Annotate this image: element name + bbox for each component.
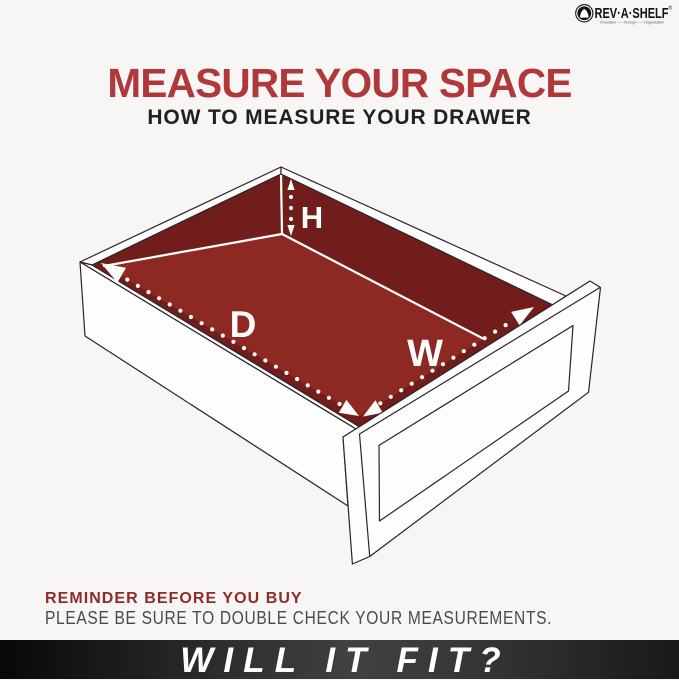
svg-text:H: H bbox=[301, 200, 323, 235]
svg-text:W: W bbox=[407, 333, 443, 375]
svg-text:D: D bbox=[230, 304, 257, 345]
